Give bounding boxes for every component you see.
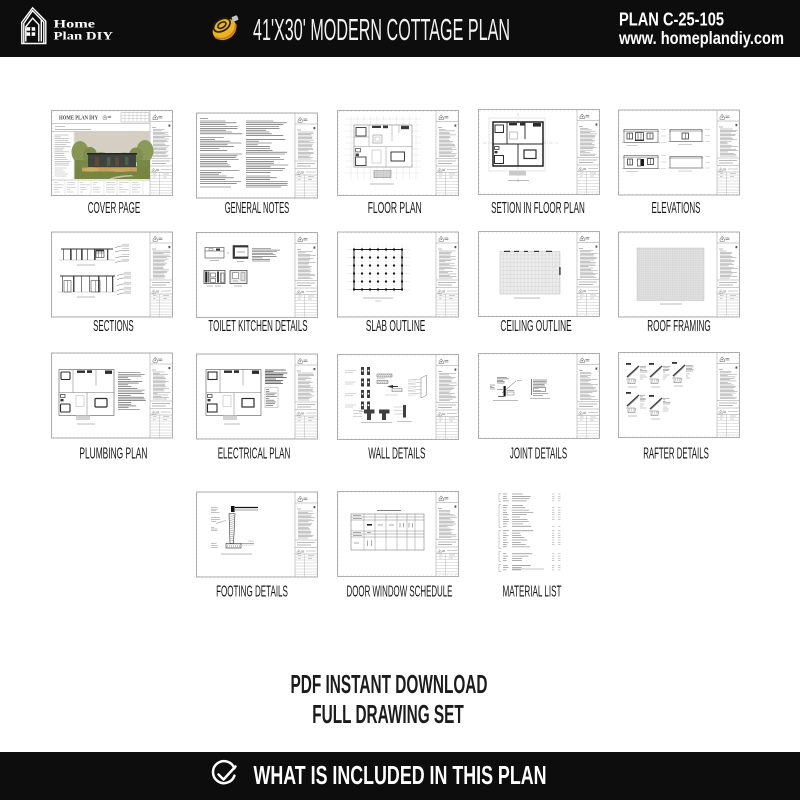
svg-text:Plan DIY: Plan DIY: [54, 31, 114, 43]
svg-text:ELEVATIONS: ELEVATIONS: [652, 200, 701, 217]
svg-text:ELECTRICAL PLAN: ELECTRICAL PLAN: [218, 445, 291, 462]
svg-text:FLOOR PLAN: FLOOR PLAN: [368, 200, 422, 217]
svg-text:ROOF FRAMING: ROOF FRAMING: [647, 318, 710, 335]
svg-text:WALL DETAILS: WALL DETAILS: [368, 445, 425, 462]
svg-text:PDF INSTANT DOWNLOAD: PDF INSTANT DOWNLOAD: [291, 669, 488, 699]
svg-text:RAFTER DETAILS: RAFTER DETAILS: [643, 445, 709, 462]
svg-text:JOINT DETAILS: JOINT DETAILS: [510, 445, 567, 462]
svg-text:MATERIAL LIST: MATERIAL LIST: [503, 584, 562, 601]
svg-text:FOOTING DETAILS: FOOTING DETAILS: [216, 584, 288, 601]
svg-text:TOILET KITCHEN DETAILS: TOILET KITCHEN DETAILS: [208, 318, 307, 335]
svg-text:COVER PAGE: COVER PAGE: [88, 200, 141, 217]
svg-text:FULL DRAWING SET: FULL DRAWING SET: [312, 699, 464, 729]
svg-text:CEILING OUTLINE: CEILING OUTLINE: [500, 318, 571, 335]
svg-text:HOME PLAN DIY: HOME PLAN DIY: [59, 116, 99, 122]
svg-text:WHAT IS INCLUDED IN THIS PLAN: WHAT IS INCLUDED IN THIS PLAN: [254, 762, 547, 790]
svg-text:GENERAL NOTES: GENERAL NOTES: [225, 200, 290, 217]
svg-text:SECTIONS: SECTIONS: [93, 318, 134, 335]
svg-text:SLAB OUTLINE: SLAB OUTLINE: [366, 318, 426, 335]
svg-text:41'X30' MODERN COTTAGE PLAN: 41'X30' MODERN COTTAGE PLAN: [253, 12, 510, 47]
svg-text:www. homeplandiy.com: www. homeplandiy.com: [618, 28, 784, 48]
svg-text:SETION IN FLOOR PLAN: SETION IN FLOOR PLAN: [491, 200, 585, 217]
svg-text:Home: Home: [54, 19, 96, 31]
svg-text:PLUMBING PLAN: PLUMBING PLAN: [79, 445, 147, 462]
svg-text:DOOR WINDOW SCHEDULE: DOOR WINDOW SCHEDULE: [347, 584, 453, 601]
svg-text:PLAN C-25-105: PLAN C-25-105: [619, 10, 724, 30]
